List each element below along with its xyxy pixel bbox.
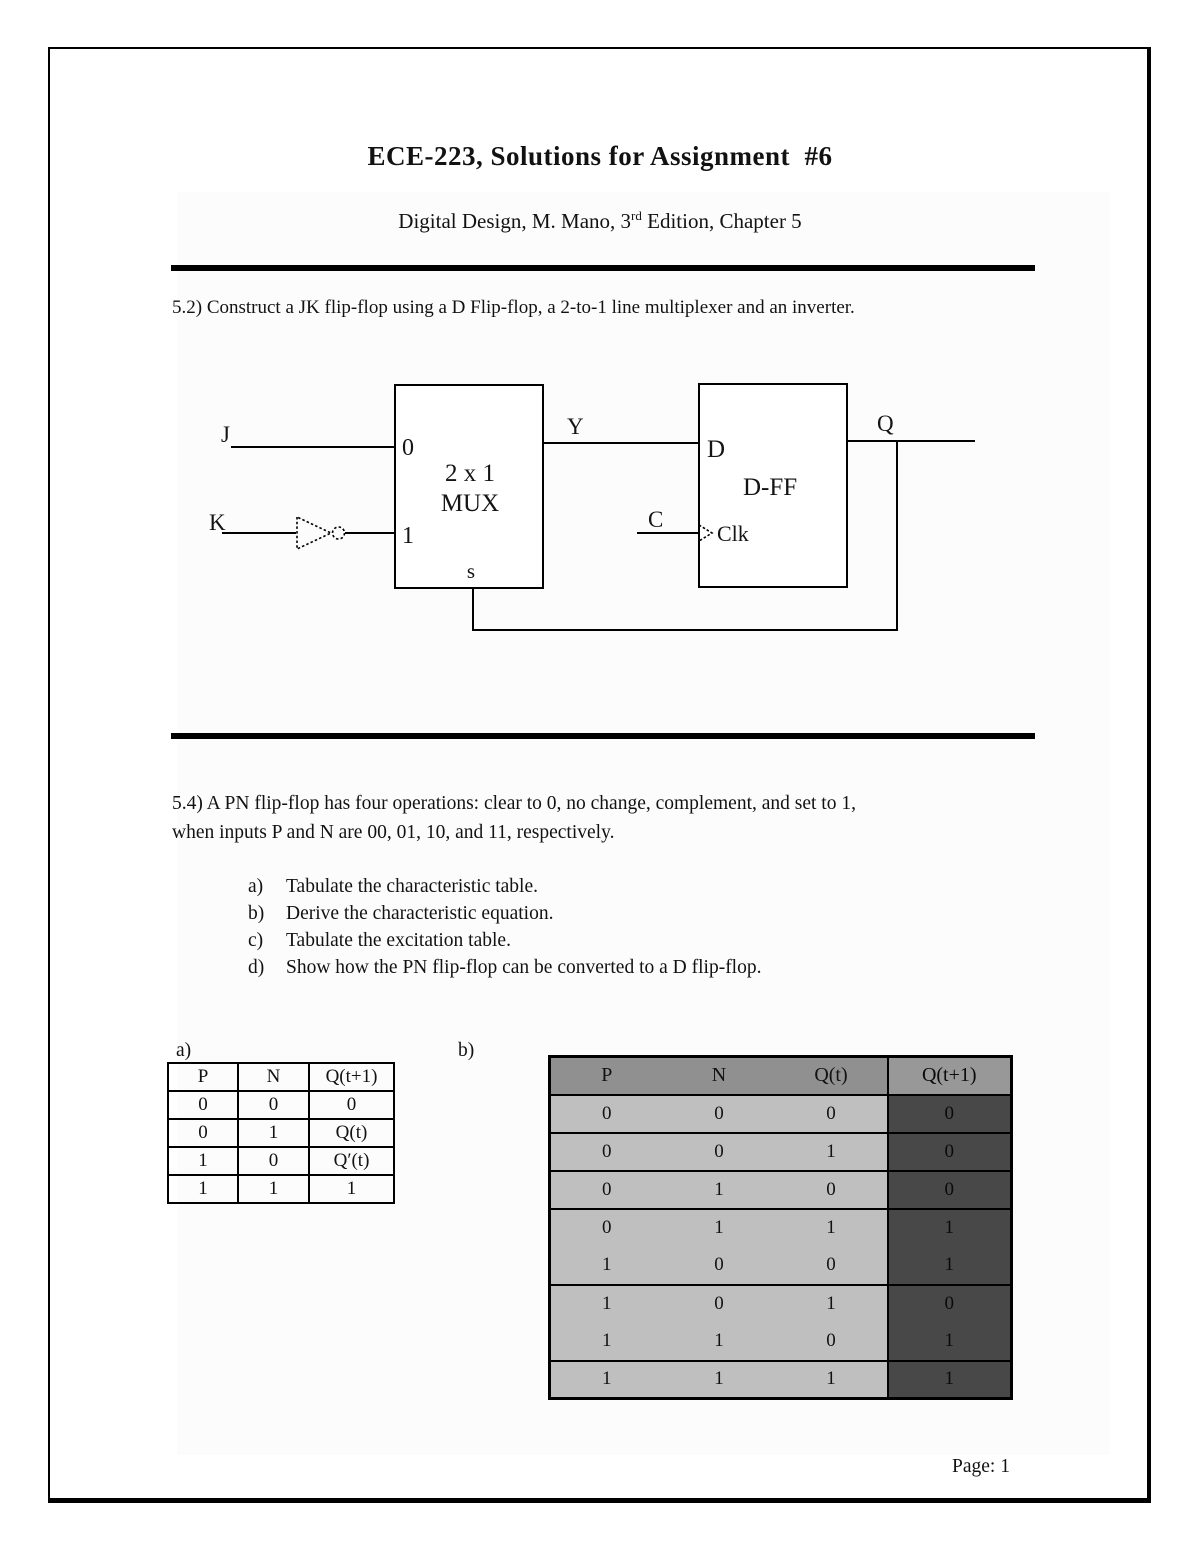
column-header: N (663, 1057, 776, 1095)
problem-5-4-line2: when inputs P and N are 00, 01, 10, and … (172, 818, 1052, 847)
problem-5-4-line1: 5.4) A PN flip-flop has four operations:… (172, 789, 1052, 818)
table-cell: 0 (776, 1247, 888, 1285)
table-row: 1 0 Q′(t) (168, 1147, 394, 1175)
column-header: P (168, 1063, 238, 1091)
list-text: Tabulate the excitation table. (286, 927, 511, 954)
list-marker: c) (248, 927, 286, 954)
truth-table: P N Q(t) Q(t+1) 0 0 0 0 0 0 1 0 0 1 (548, 1055, 1013, 1400)
inverter-bubble-icon (333, 527, 345, 539)
table-cell: 0 (776, 1323, 888, 1361)
characteristic-table: P N Q(t+1) 0 0 0 0 1 Q(t) 1 0 Q′(t) 1 (167, 1062, 395, 1204)
table-cell: 0 (550, 1171, 663, 1209)
table-cell: 1 (309, 1175, 394, 1203)
label-q: Q (877, 411, 894, 436)
list-text: Tabulate the characteristic table. (286, 873, 538, 900)
table-cell: 0 (663, 1095, 776, 1133)
table-cell: 1 (550, 1323, 663, 1361)
table-cell: 1 (663, 1361, 776, 1399)
table-cell: 1 (168, 1147, 238, 1175)
table-cell: 1 (663, 1323, 776, 1361)
label-mux-name: MUX (441, 490, 499, 517)
label-dff: D-FF (743, 474, 797, 501)
list-marker: d) (248, 954, 286, 981)
list-marker: a) (248, 873, 286, 900)
table-row: 1 1 1 1 (550, 1361, 1012, 1399)
table-cell: 0 (663, 1285, 776, 1323)
table-cell: 1 (776, 1209, 888, 1247)
table-cell: Q(t) (309, 1119, 394, 1147)
table-cell: 0 (888, 1095, 1012, 1133)
column-header: N (238, 1063, 309, 1091)
list-item: b) Derive the characteristic equation. (248, 900, 948, 927)
table-cell: 0 (550, 1133, 663, 1171)
label-j: J (221, 422, 230, 447)
table-cell: 1 (888, 1323, 1012, 1361)
table-cell: 0 (550, 1209, 663, 1247)
table-row: 1 1 1 (168, 1175, 394, 1203)
table-a-label: a) (176, 1040, 191, 1062)
table-cell: 1 (888, 1247, 1012, 1285)
label-c: C (648, 507, 663, 532)
table-cell: 0 (888, 1133, 1012, 1171)
table-row: P N Q(t+1) (168, 1063, 394, 1091)
table-cell: 0 (663, 1133, 776, 1171)
table-cell: 0 (888, 1285, 1012, 1323)
table-cell: 1 (550, 1361, 663, 1399)
problem-5-4-text: 5.4) A PN flip-flop has four operations:… (172, 789, 1052, 847)
page-title: ECE-223, Solutions for Assignment #6 (170, 141, 1030, 172)
table-cell: 0 (309, 1091, 394, 1119)
table-row: 1 0 0 1 (550, 1247, 1012, 1285)
problem-5-2-text: 5.2) Construct a JK flip-flop using a D … (172, 297, 1048, 319)
table-row: 0 0 1 0 (550, 1133, 1012, 1171)
page-subtitle: Digital Design, M. Mano, 3rd Edition, Ch… (170, 208, 1030, 234)
label-mux-input-1: 1 (402, 523, 414, 549)
table-cell: 0 (663, 1247, 776, 1285)
circuit-diagram: J K 0 1 2 x 1 MUX s Y D D-FF C Clk Q (170, 370, 1000, 670)
list-text: Derive the characteristic equation. (286, 900, 553, 927)
table-cell: 0 (238, 1091, 309, 1119)
page-number: Page: 1 (952, 1456, 1010, 1478)
table-cell: 1 (550, 1247, 663, 1285)
table-cell: 0 (550, 1095, 663, 1133)
table-cell: Q′(t) (309, 1147, 394, 1175)
table-cell: 1 (888, 1361, 1012, 1399)
table-row: 1 0 1 0 (550, 1285, 1012, 1323)
problem-5-4-subquestions: a) Tabulate the characteristic table. b)… (248, 873, 948, 981)
table-cell: 1 (663, 1171, 776, 1209)
table-cell: 1 (776, 1285, 888, 1323)
table-cell: 1 (238, 1175, 309, 1203)
column-header: Q(t+1) (309, 1063, 394, 1091)
list-item: a) Tabulate the characteristic table. (248, 873, 948, 900)
table-cell: 1 (776, 1361, 888, 1399)
table-row: P N Q(t) Q(t+1) (550, 1057, 1012, 1095)
table-row: 0 1 Q(t) (168, 1119, 394, 1147)
label-k: K (209, 510, 226, 535)
table-row: 0 1 1 1 (550, 1209, 1012, 1247)
table-cell: 0 (238, 1147, 309, 1175)
table-cell: 0 (168, 1119, 238, 1147)
label-mux-input-0: 0 (402, 435, 414, 461)
column-header: P (550, 1057, 663, 1095)
label-mux-select: s (467, 559, 475, 583)
horizontal-divider-bottom (171, 733, 1035, 739)
table-cell: 1 (550, 1285, 663, 1323)
document-page: ECE-223, Solutions for Assignment #6 Dig… (0, 0, 1200, 1553)
table-cell: 1 (776, 1133, 888, 1171)
table-row: 0 0 0 (168, 1091, 394, 1119)
label-y: Y (567, 414, 584, 439)
label-mux-size: 2 x 1 (445, 460, 495, 487)
table-cell: 1 (888, 1209, 1012, 1247)
subtitle-superscript: rd (631, 208, 642, 223)
list-marker: b) (248, 900, 286, 927)
table-cell: 0 (888, 1171, 1012, 1209)
inverter-gate-icon (297, 517, 331, 549)
list-item: c) Tabulate the excitation table. (248, 927, 948, 954)
table-cell: 0 (776, 1095, 888, 1133)
list-item: d) Show how the PN flip-flop can be conv… (248, 954, 948, 981)
table-cell: 1 (238, 1119, 309, 1147)
subtitle-suffix: Edition, Chapter 5 (642, 209, 802, 233)
subtitle-prefix: Digital Design, M. Mano, 3 (398, 209, 631, 233)
label-clk: Clk (717, 521, 749, 546)
table-cell: 1 (168, 1175, 238, 1203)
table-cell: 0 (168, 1091, 238, 1119)
horizontal-divider-top (171, 265, 1035, 271)
table-cell: 0 (776, 1171, 888, 1209)
table-row: 0 0 0 0 (550, 1095, 1012, 1133)
table-cell: 1 (663, 1209, 776, 1247)
label-d: D (707, 436, 725, 463)
table-row: 1 1 0 1 (550, 1323, 1012, 1361)
table-b-label: b) (458, 1040, 474, 1062)
list-text: Show how the PN flip-flop can be convert… (286, 954, 761, 981)
table-row: 0 1 0 0 (550, 1171, 1012, 1209)
column-header: Q(t+1) (888, 1057, 1012, 1095)
column-header: Q(t) (776, 1057, 888, 1095)
